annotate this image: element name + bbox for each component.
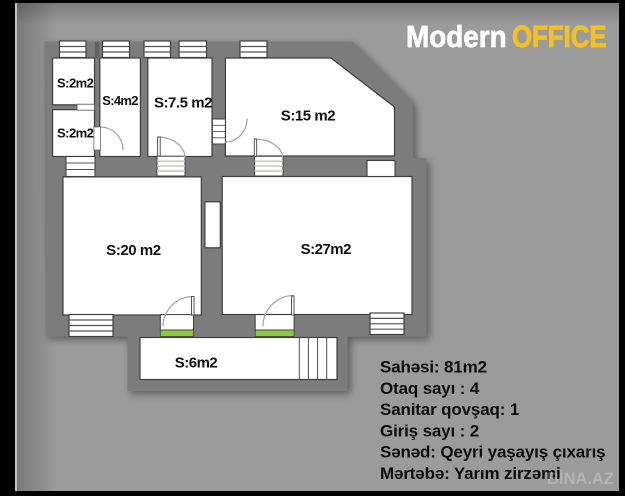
svg-text:OFFICE: OFFICE (512, 19, 607, 54)
svg-text:S:2m2: S:2m2 (57, 76, 94, 91)
svg-text:Sanitar qovşaq: 1: Sanitar qovşaq: 1 (380, 400, 519, 419)
svg-text:S:4m2: S:4m2 (102, 93, 138, 108)
svg-text:Sahəsi: 81m2: Sahəsi: 81m2 (380, 358, 487, 377)
svg-text:BİNA.AZ: BİNA.AZ (547, 470, 614, 488)
svg-text:S:7.5 m2: S:7.5 m2 (154, 95, 212, 112)
svg-text:S:2m2: S:2m2 (57, 126, 94, 141)
svg-text:Giriş sayı : 2: Giriş sayı : 2 (380, 421, 479, 440)
svg-text:S:15 m2: S:15 m2 (281, 108, 335, 125)
svg-text:S:20 m2: S:20 m2 (106, 242, 160, 259)
svg-text:Sənəd: Qeyri yaşayış çıxarış: Sənəd: Qeyri yaşayış çıxarış (380, 443, 605, 462)
svg-text:Otaq sayı : 4: Otaq sayı : 4 (380, 379, 480, 398)
svg-text:S:6m2: S:6m2 (175, 355, 218, 372)
svg-text:S:27m2: S:27m2 (301, 241, 352, 258)
svg-text:Mərtəbə: Yarım zirzəmi: Mərtəbə: Yarım zirzəmi (380, 464, 561, 483)
svg-text:Modern: Modern (406, 21, 507, 54)
